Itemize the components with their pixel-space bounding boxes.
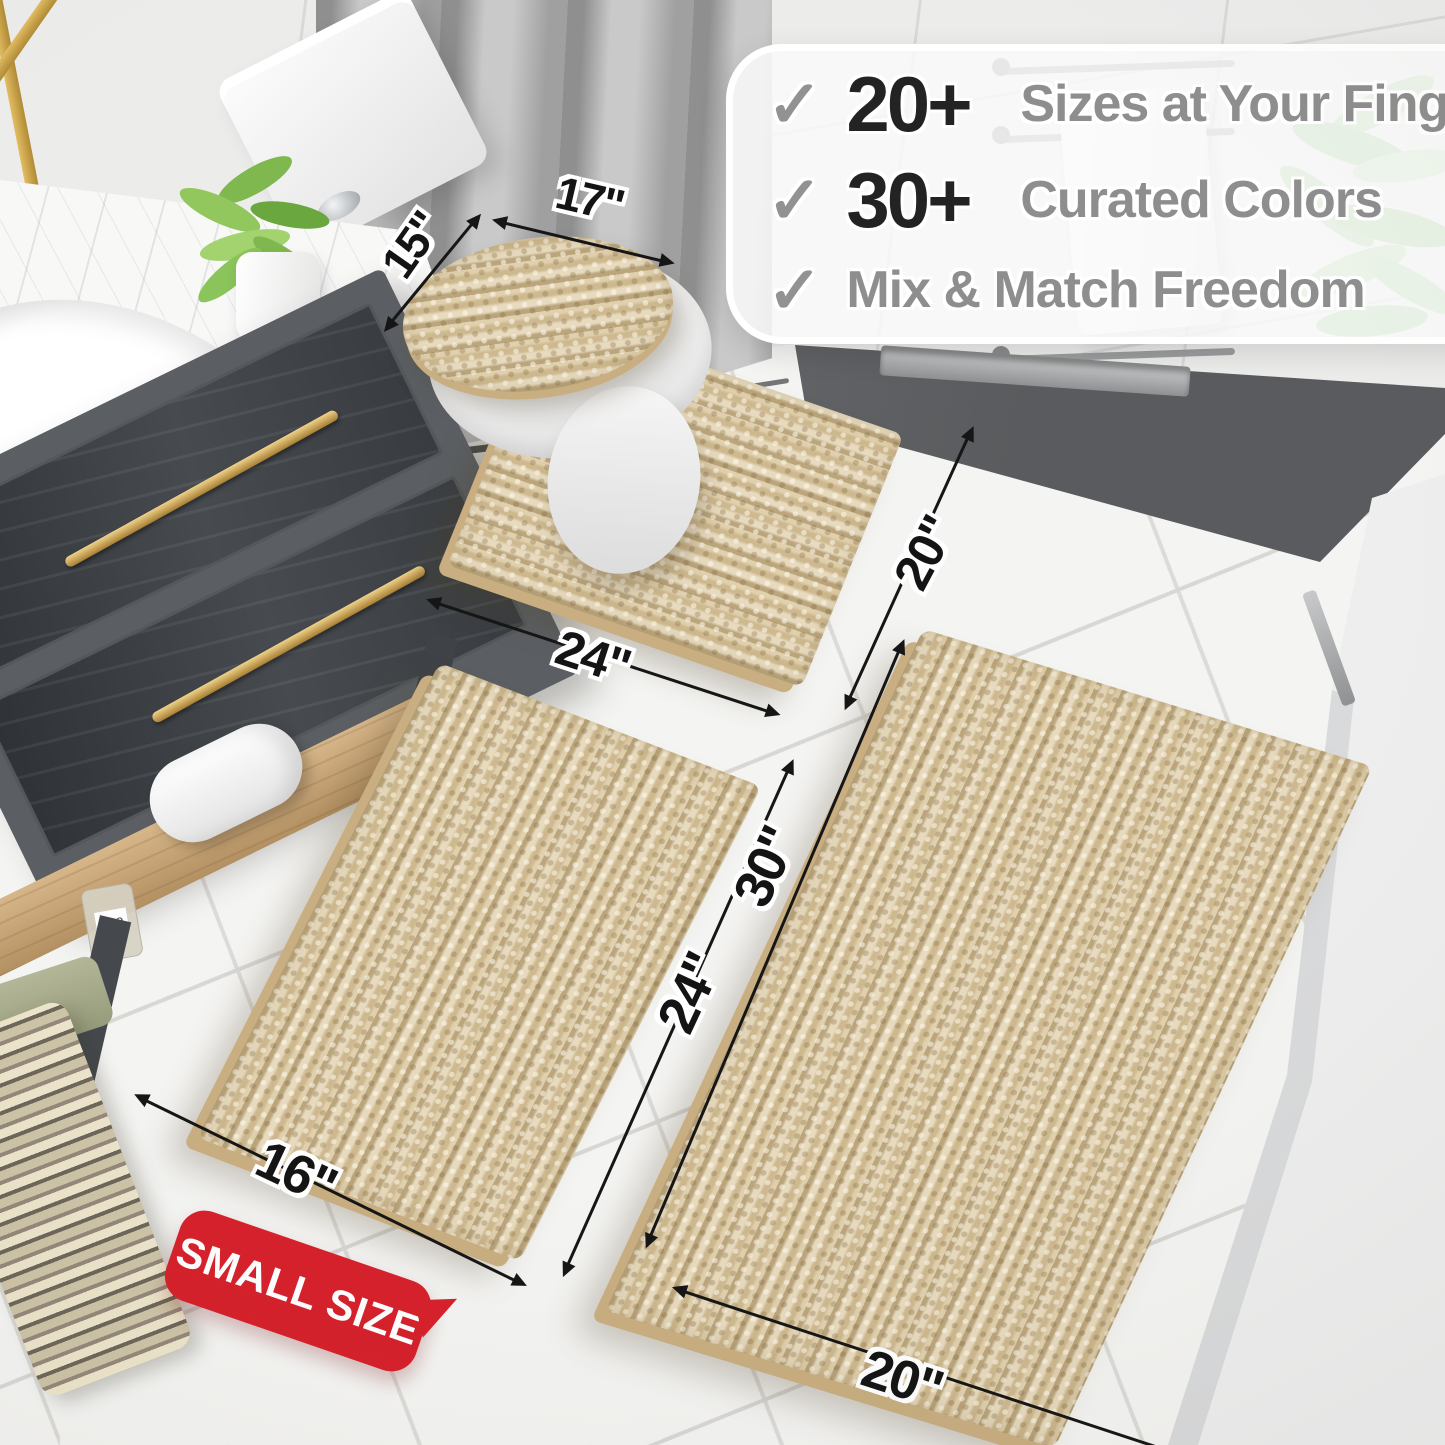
check-icon: ✓ <box>767 167 822 233</box>
feature-label: Curated Colors <box>1020 174 1382 226</box>
feature-label: Sizes at Your Fingertips <box>1020 78 1445 130</box>
stat-colors: 30+ <box>846 161 996 239</box>
feature-row-sizes: ✓ 20+ Sizes at Your Fingertips <box>767 65 1445 143</box>
drawer-handle <box>63 409 339 569</box>
drawer-handle <box>150 564 426 724</box>
check-icon: ✓ <box>767 257 822 323</box>
feature-row-colors: ✓ 30+ Curated Colors <box>767 161 1445 239</box>
feature-label: Mix & Match Freedom <box>846 264 1364 316</box>
feature-row-mix: ✓ Mix & Match Freedom <box>767 257 1445 323</box>
check-icon: ✓ <box>767 71 822 137</box>
bathroom-product-scene: MISQ 17" 15" 24" 20" 24" 30" 16" 20" ✓ 2… <box>0 0 1445 1445</box>
stat-sizes: 20+ <box>846 65 996 143</box>
feature-callout: ✓ 20+ Sizes at Your Fingertips ✓ 30+ Cur… <box>726 44 1445 344</box>
